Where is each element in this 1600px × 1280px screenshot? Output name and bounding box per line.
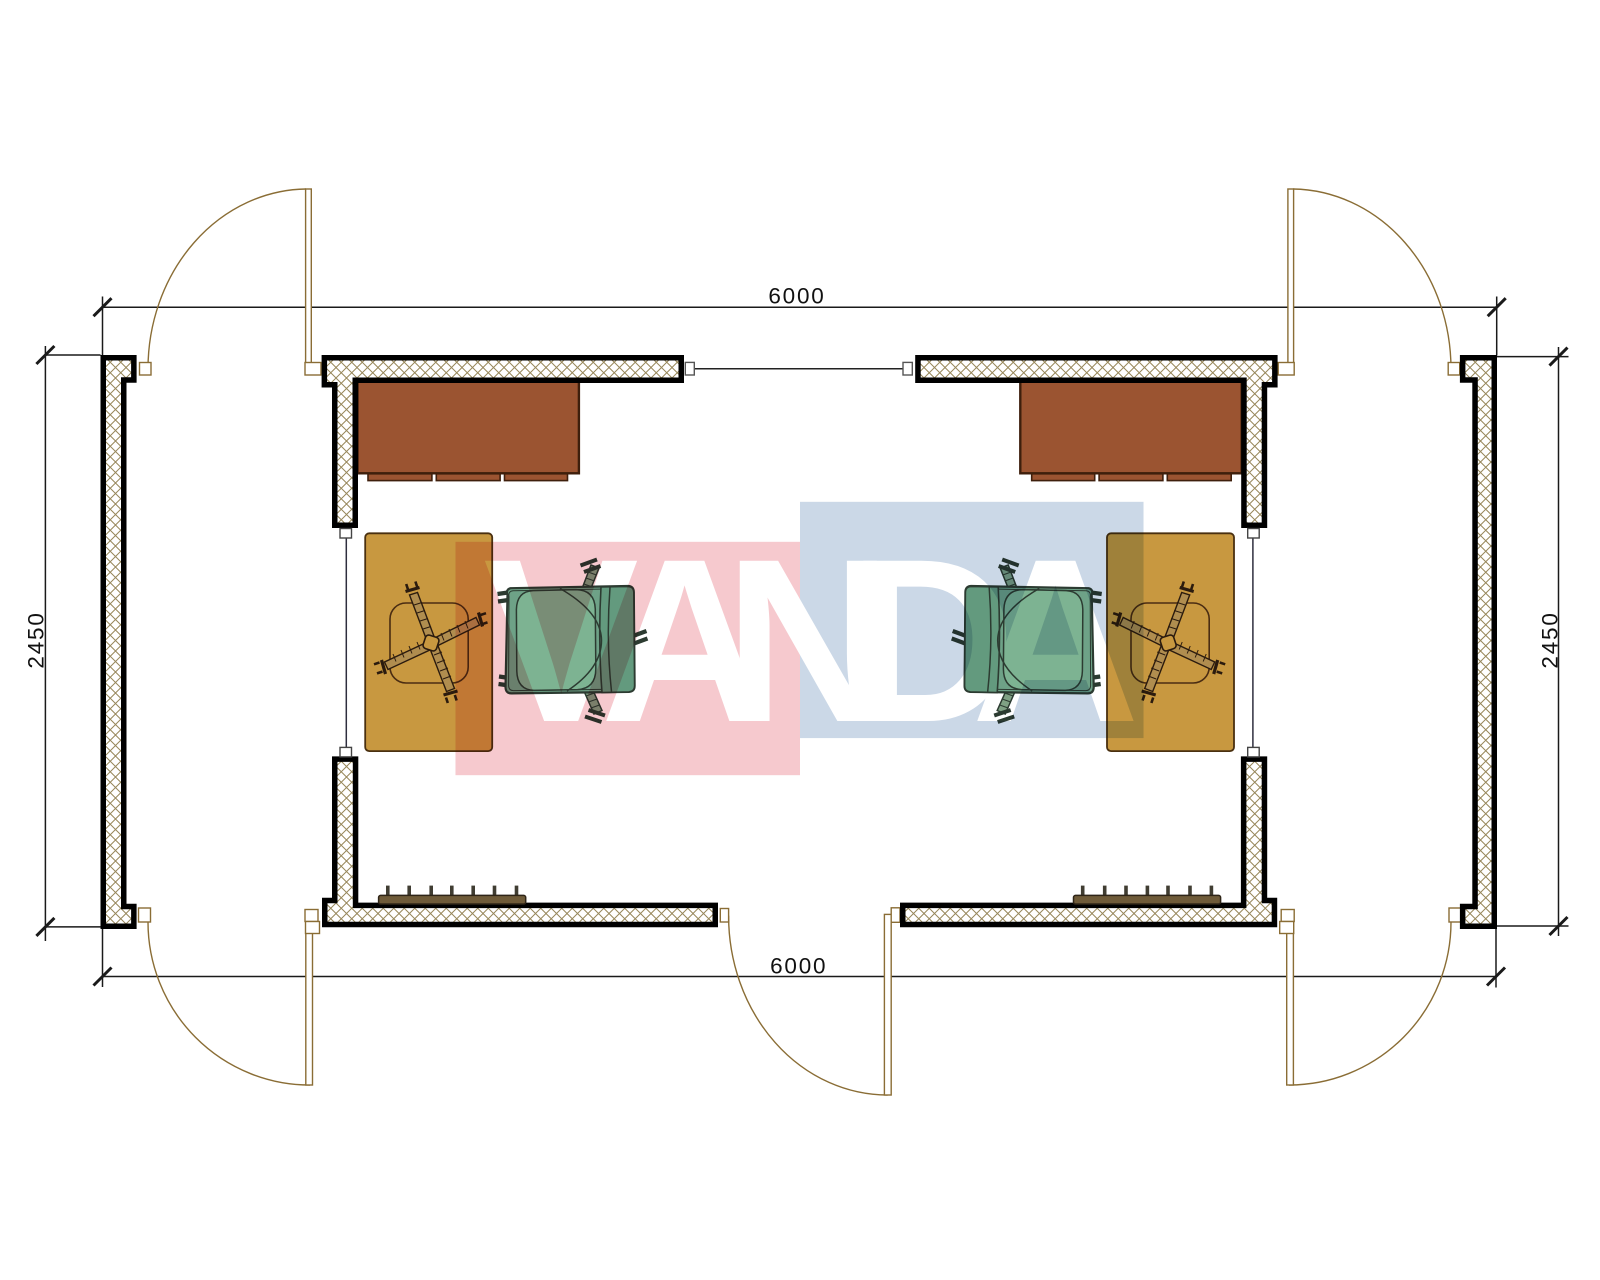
svg-text:6000: 6000 (770, 954, 827, 979)
svg-text:2450: 2450 (24, 611, 49, 668)
svg-text:2450: 2450 (1537, 611, 1562, 668)
svg-text:6000: 6000 (768, 284, 825, 309)
